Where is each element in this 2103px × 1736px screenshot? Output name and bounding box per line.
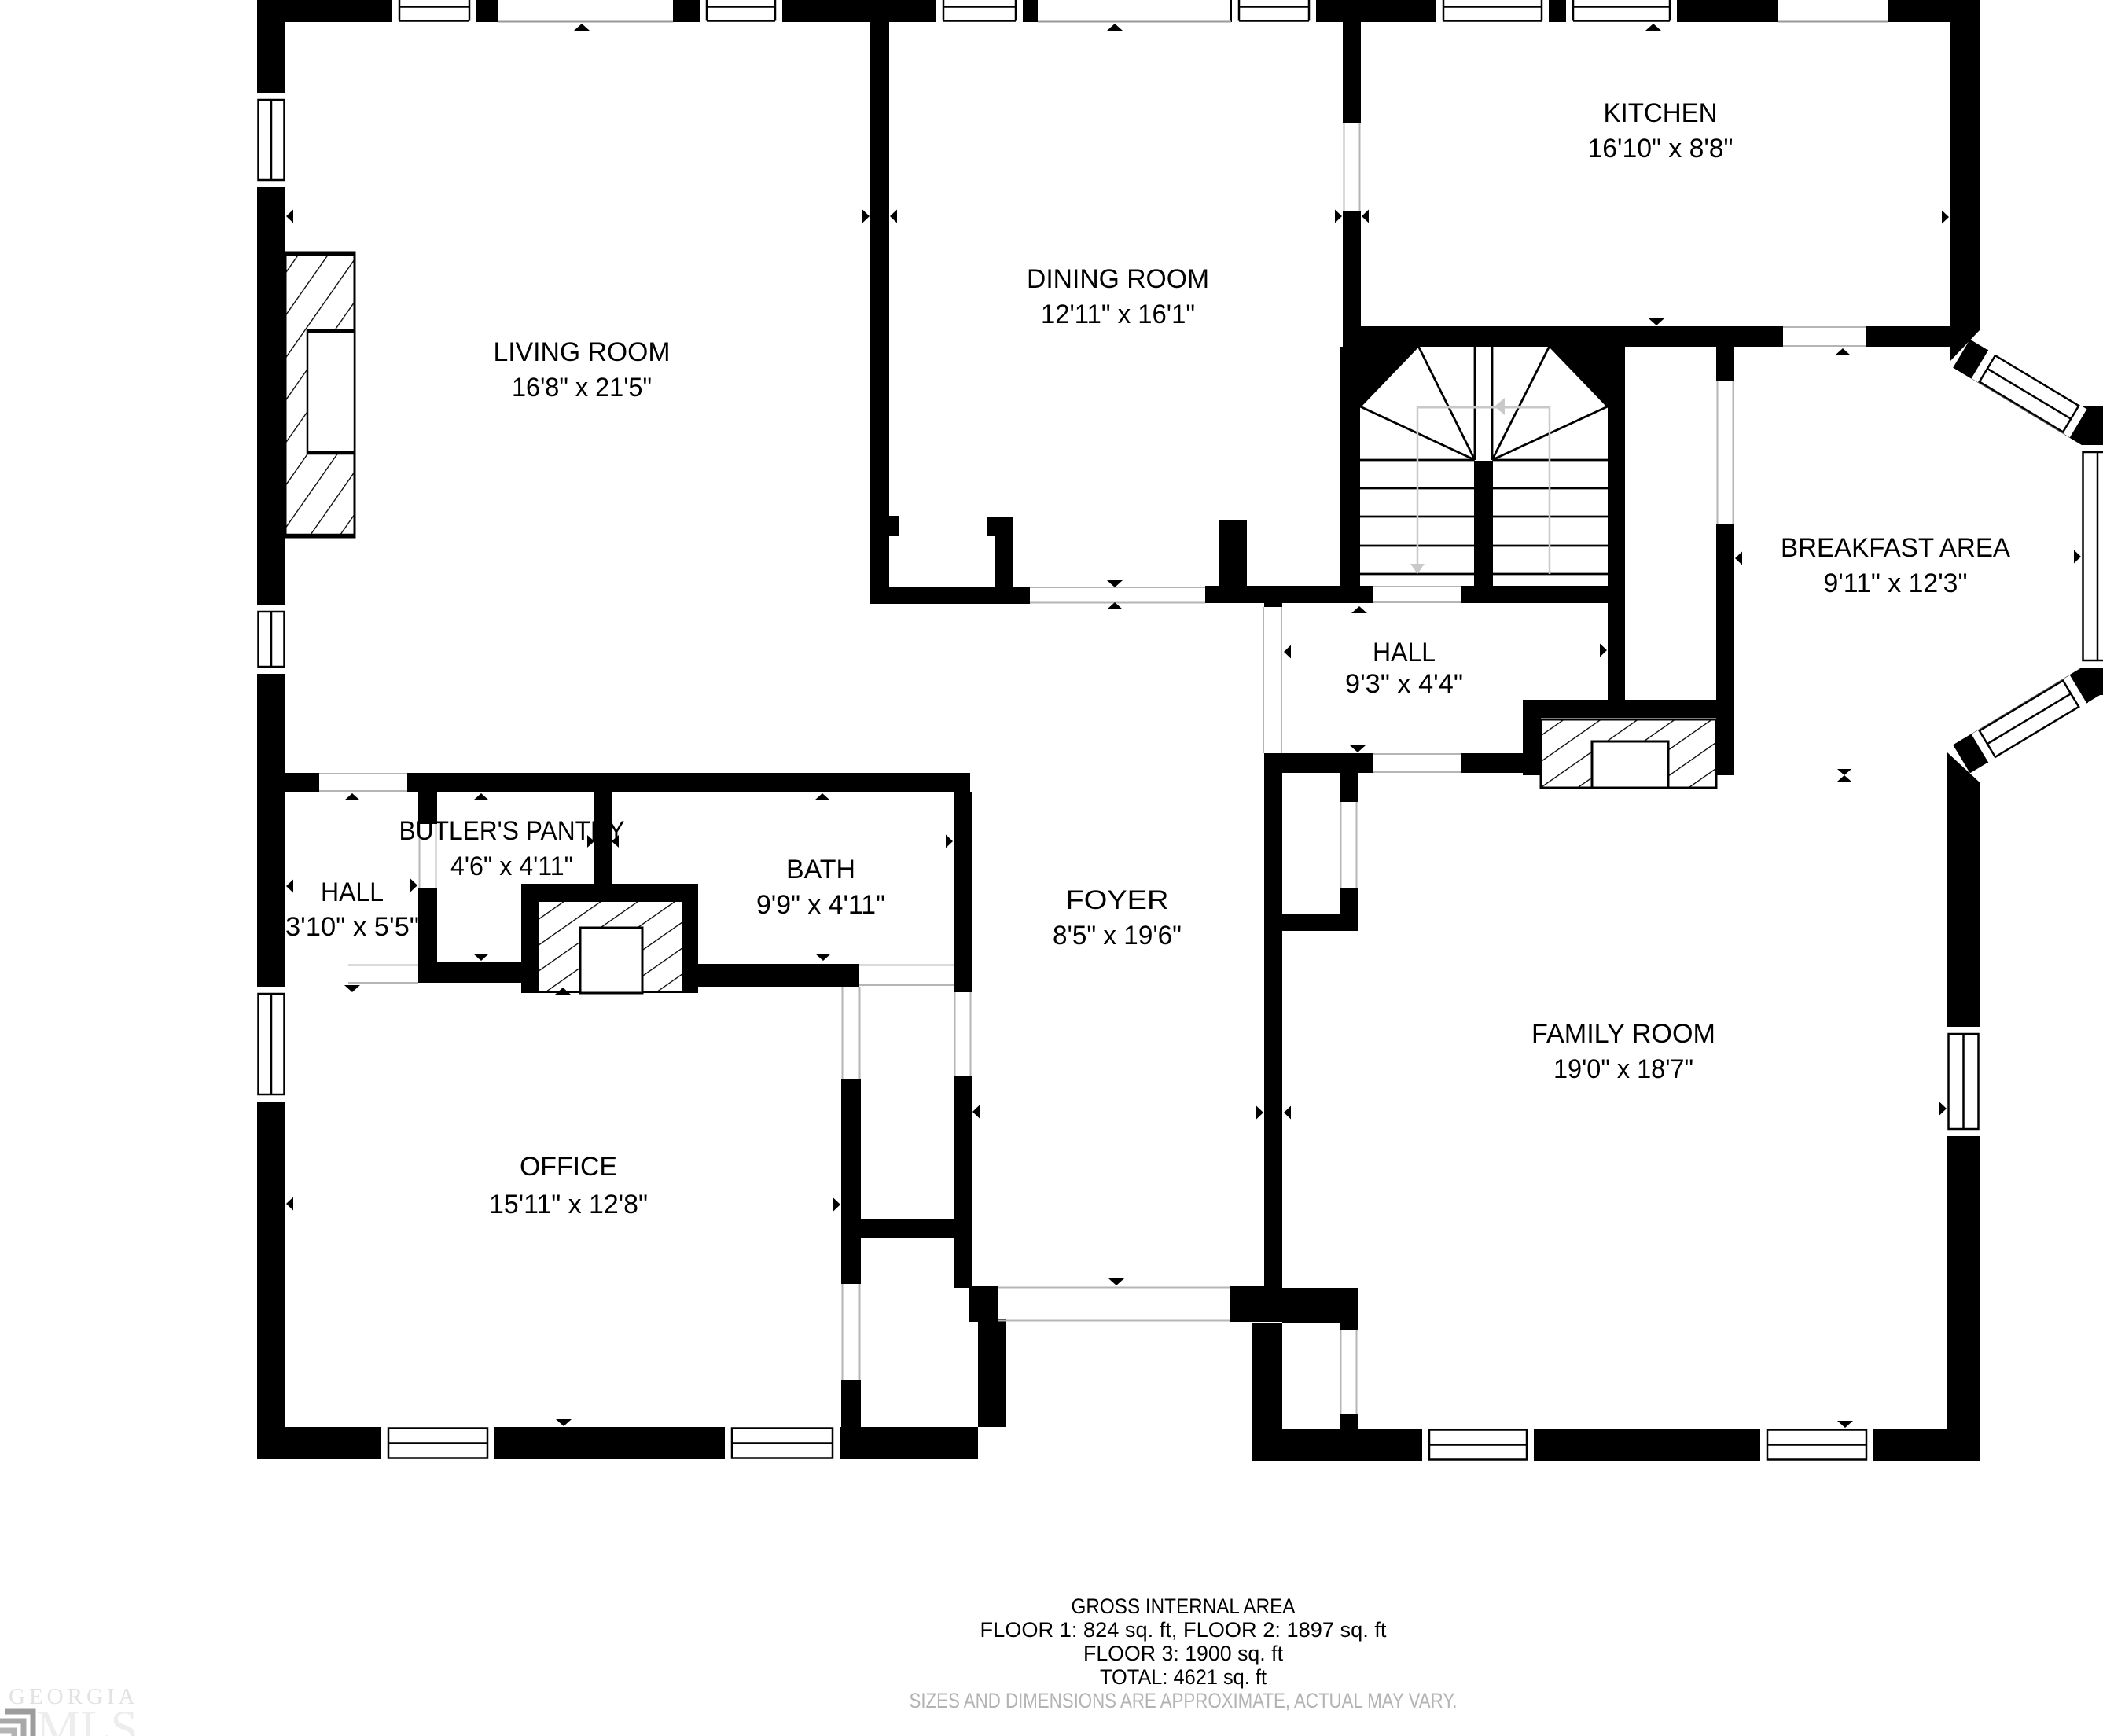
svg-text:OFFICE: OFFICE bbox=[520, 1152, 617, 1182]
svg-text:3'10" x 5'5": 3'10" x 5'5" bbox=[285, 912, 419, 942]
svg-text:FLOOR 3: 1900 sq. ft: FLOOR 3: 1900 sq. ft bbox=[1083, 1642, 1283, 1665]
svg-text:8'5" x 19'6": 8'5" x 19'6" bbox=[1053, 921, 1182, 951]
svg-text:MLS: MLS bbox=[36, 1701, 138, 1736]
svg-text:FAMILY ROOM: FAMILY ROOM bbox=[1531, 1019, 1715, 1049]
svg-text:9'3" x 4'4": 9'3" x 4'4" bbox=[1345, 669, 1463, 699]
svg-text:16'8" x 21'5": 16'8" x 21'5" bbox=[512, 373, 652, 403]
svg-text:12'11" x 16'1": 12'11" x 16'1" bbox=[1041, 300, 1195, 329]
svg-text:KITCHEN: KITCHEN bbox=[1604, 98, 1718, 128]
svg-text:19'0" x 18'7": 19'0" x 18'7" bbox=[1553, 1054, 1693, 1084]
svg-text:BREAKFAST AREA: BREAKFAST AREA bbox=[1781, 533, 2010, 563]
svg-text:HALL: HALL bbox=[321, 877, 384, 907]
svg-text:BATH: BATH bbox=[786, 855, 855, 885]
svg-text:DINING ROOM: DINING ROOM bbox=[1027, 264, 1209, 294]
svg-text:HALL: HALL bbox=[1373, 638, 1436, 668]
svg-text:FLOOR 1: 824 sq. ft, FLOOR 2:: FLOOR 1: 824 sq. ft, FLOOR 2: 1897 sq. f… bbox=[980, 1618, 1387, 1642]
svg-text:SIZES AND DIMENSIONS ARE APPRO: SIZES AND DIMENSIONS ARE APPROXIMATE, AC… bbox=[910, 1689, 1458, 1712]
svg-text:FOYER: FOYER bbox=[1066, 885, 1169, 915]
svg-text:16'10" x 8'8": 16'10" x 8'8" bbox=[1588, 134, 1734, 164]
svg-text:4'6" x 4'11": 4'6" x 4'11" bbox=[450, 851, 573, 881]
svg-text:TOTAL: 4621 sq. ft: TOTAL: 4621 sq. ft bbox=[1100, 1665, 1267, 1689]
svg-text:9'11" x 12'3": 9'11" x 12'3" bbox=[1824, 568, 1968, 598]
svg-text:LIVING ROOM: LIVING ROOM bbox=[494, 337, 671, 367]
svg-text:BUTLER'S PANTRY: BUTLER'S PANTRY bbox=[399, 816, 625, 846]
svg-text:9'9" x 4'11": 9'9" x 4'11" bbox=[756, 890, 885, 920]
svg-text:15'11" x 12'8": 15'11" x 12'8" bbox=[489, 1190, 648, 1219]
svg-text:GROSS INTERNAL AREA: GROSS INTERNAL AREA bbox=[1072, 1594, 1296, 1618]
